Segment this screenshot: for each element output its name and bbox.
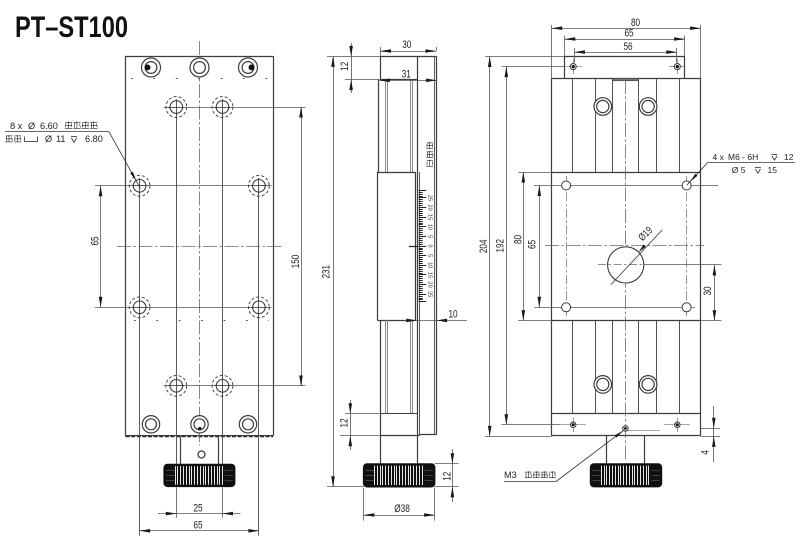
svg-text:11: 11 [56, 134, 66, 144]
svg-text:65: 65 [527, 240, 539, 249]
svg-text:5: 5 [426, 254, 432, 257]
svg-text:Ø: Ø [45, 134, 52, 144]
svg-text:231: 231 [321, 265, 333, 279]
svg-text:8 x: 8 x [10, 121, 23, 131]
svg-text:204: 204 [478, 240, 490, 254]
svg-text:15: 15 [426, 272, 432, 278]
svg-text:25: 25 [193, 502, 202, 514]
svg-text:192: 192 [494, 239, 506, 253]
svg-text:30: 30 [402, 39, 411, 51]
svg-text:12: 12 [784, 152, 794, 162]
svg-text:6.60: 6.60 [40, 121, 58, 131]
svg-text:10: 10 [448, 308, 457, 320]
svg-text:Ø38: Ø38 [394, 503, 410, 515]
svg-text:0: 0 [426, 245, 432, 248]
svg-text:6.80: 6.80 [85, 134, 103, 144]
svg-text:20: 20 [426, 282, 432, 288]
svg-text:15: 15 [768, 165, 778, 175]
svg-text:80: 80 [513, 235, 525, 244]
svg-text:Ø: Ø [28, 121, 35, 131]
svg-text:10: 10 [426, 224, 432, 230]
svg-text:25: 25 [426, 195, 432, 201]
svg-text:M6 - 6H: M6 - 6H [728, 152, 758, 162]
svg-text:30: 30 [702, 286, 714, 295]
svg-text:Ø 5: Ø 5 [732, 165, 746, 175]
svg-text:4 x: 4 x [713, 152, 725, 162]
svg-text:56: 56 [623, 41, 632, 53]
svg-text:20: 20 [426, 205, 432, 211]
svg-text:12: 12 [339, 62, 351, 71]
svg-text:65: 65 [624, 27, 633, 39]
svg-text:12: 12 [441, 472, 453, 481]
svg-text:10: 10 [426, 262, 432, 268]
svg-text:5: 5 [426, 235, 432, 238]
svg-text:31: 31 [402, 69, 411, 81]
svg-text:PT–ST100: PT–ST100 [15, 11, 128, 44]
svg-text:150: 150 [290, 255, 302, 269]
svg-text:M3: M3 [504, 470, 517, 480]
svg-text:12: 12 [338, 418, 350, 427]
svg-text:25: 25 [426, 291, 432, 297]
svg-text:15: 15 [426, 214, 432, 220]
svg-text:65: 65 [89, 236, 101, 245]
svg-text:65: 65 [193, 519, 202, 531]
svg-text:4: 4 [700, 450, 712, 455]
